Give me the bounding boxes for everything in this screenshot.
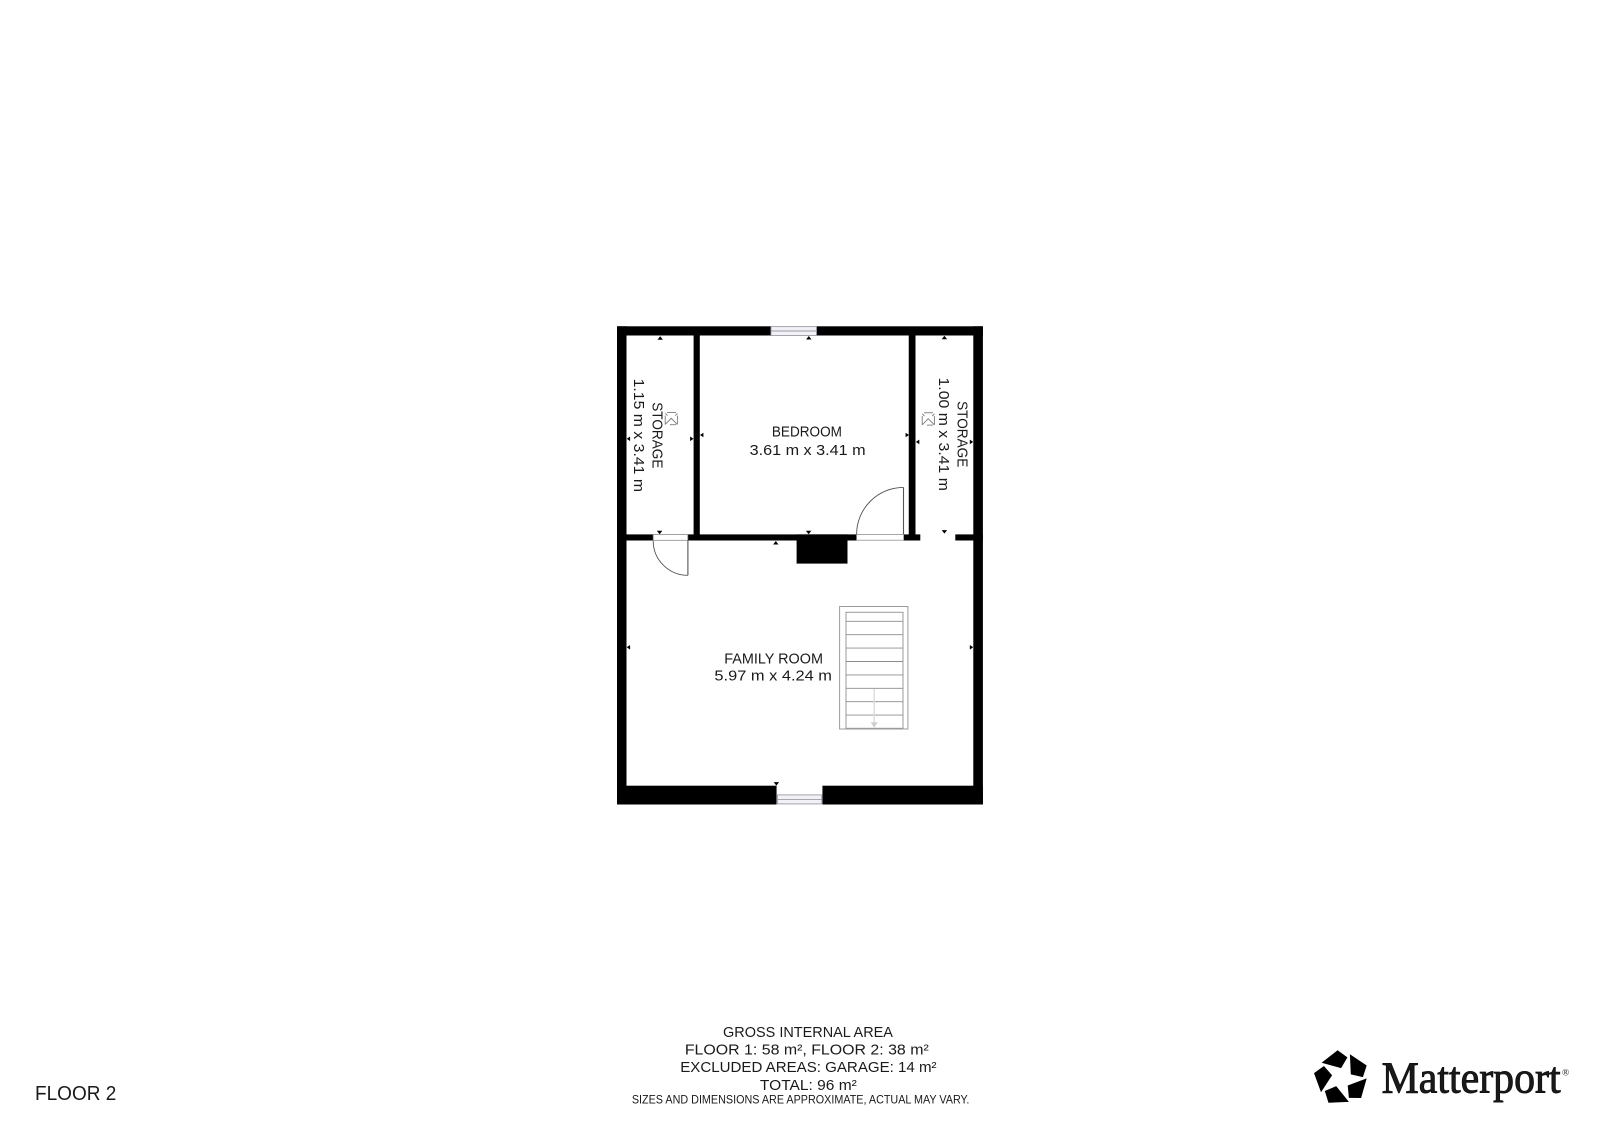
svg-text:SIZES AND DIMENSIONS ARE APPRO: SIZES AND DIMENSIONS ARE APPROXIMATE, AC… <box>632 1093 970 1107</box>
svg-text:3.61 m x 3.41 m: 3.61 m x 3.41 m <box>750 443 866 459</box>
svg-text:FLOOR 2: FLOOR 2 <box>35 1082 116 1105</box>
svg-text:GROSS INTERNAL AREA: GROSS INTERNAL AREA <box>723 1025 893 1041</box>
svg-text:FLOOR 1: 58 m², FLOOR 2: 38 m²: FLOOR 1: 58 m², FLOOR 2: 38 m² <box>685 1043 929 1059</box>
svg-text:1.00 m x 3.41 m: 1.00 m x 3.41 m <box>935 378 951 491</box>
svg-text:EXCLUDED AREAS: GARAGE: 14 m²: EXCLUDED AREAS: GARAGE: 14 m² <box>680 1060 936 1076</box>
svg-text:Matterport: Matterport <box>1382 1054 1561 1103</box>
svg-text:FAMILY ROOM: FAMILY ROOM <box>724 651 823 667</box>
svg-text:STORAGE: STORAGE <box>953 401 969 468</box>
svg-text:BEDROOM: BEDROOM <box>772 424 842 440</box>
svg-text:®: ® <box>1562 1068 1569 1079</box>
svg-text:STORAGE: STORAGE <box>649 402 665 469</box>
svg-text:1.15 m x 3.41 m: 1.15 m x 3.41 m <box>630 379 646 492</box>
svg-text:5.97 m x 4.24 m: 5.97 m x 4.24 m <box>714 669 832 685</box>
svg-text:TOTAL: 96 m²: TOTAL: 96 m² <box>760 1078 857 1094</box>
